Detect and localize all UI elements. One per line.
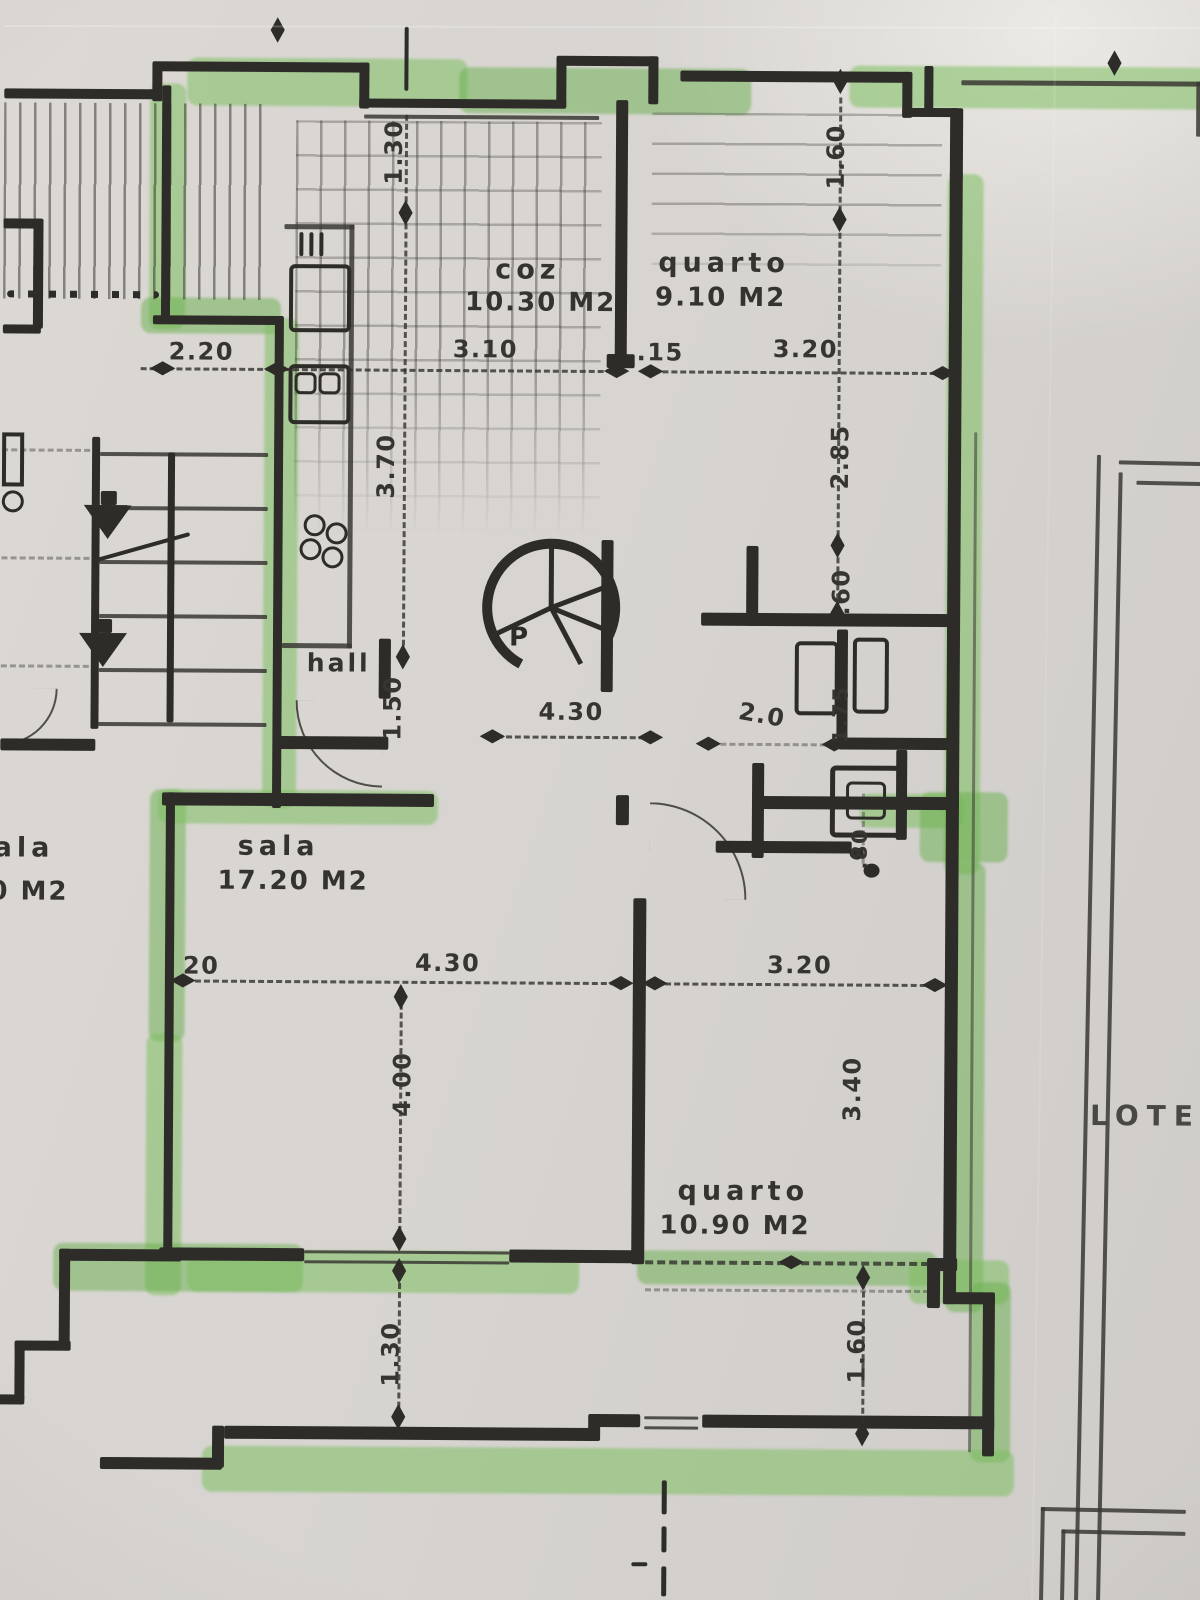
dim-label: 1.75 [828,686,852,744]
room-label-living: sala [238,831,320,862]
room-label-hall: hall [307,648,371,677]
dim-label: .60 [827,568,855,615]
neighbor-wall [1119,460,1200,466]
dim-label: 20 [183,951,220,979]
dim-label: 2.85 [826,424,854,489]
dimension-tick [661,1526,666,1552]
dimension-tick [661,1566,666,1596]
dim-label: 1.50 [378,675,406,740]
dim-label: 1.30 [380,119,408,184]
neighbor-wall [1041,1507,1186,1514]
dim-label: 3.70 [372,433,400,498]
dim-label: 1.60 [822,124,850,189]
dim-label: 2.20 [169,337,234,365]
dim-label: .15 [637,338,684,366]
dim-label: 4.30 [538,698,603,726]
room-label-kitchen: coz [495,254,560,285]
neighbor-wall [1074,455,1101,1600]
dim-label: 4.30 [415,949,480,977]
dim-label: 3.20 [773,335,838,363]
neighbor-wall [1060,1529,1066,1600]
dimension-tick [631,1562,647,1566]
neighbor-wall [1039,1507,1045,1600]
dim-label: 3.10 [453,335,518,363]
dimension-tick [662,1480,667,1514]
room-label-neighbor: ala [0,832,54,863]
dim-label: .80 [848,828,872,870]
dimension-tick [404,27,408,91]
dim-label: 1.60 [842,1318,870,1383]
neighbor-wall [1096,472,1123,1600]
dim-label: 4.00 [388,1051,416,1116]
dim-label: 3.20 [767,951,832,979]
lot-label: LOTE [1090,1099,1200,1133]
area-label-living: 17.20 M2 [217,866,368,897]
neighbor-structure [0,0,1200,1600]
area-label-neighbor: 0 M2 [0,876,69,906]
room-label-bedroom-top: quarto [658,247,790,279]
area-label-bedroom-top: 9.10 M2 [655,282,786,313]
area-label-bedroom-bottom: 10.90 M2 [659,1210,810,1241]
floor-plan: P [0,0,1200,1600]
area-label-kitchen: 10.30 M2 [465,287,616,318]
room-label-bedroom-bottom: quarto [678,1175,810,1207]
floor-plan-photo: P [0,0,1200,1600]
dim-label: 3.40 [838,1056,866,1121]
neighbor-wall [1136,481,1200,486]
dim-label: 1.30 [376,1321,404,1386]
neighbor-wall [1061,1529,1185,1535]
